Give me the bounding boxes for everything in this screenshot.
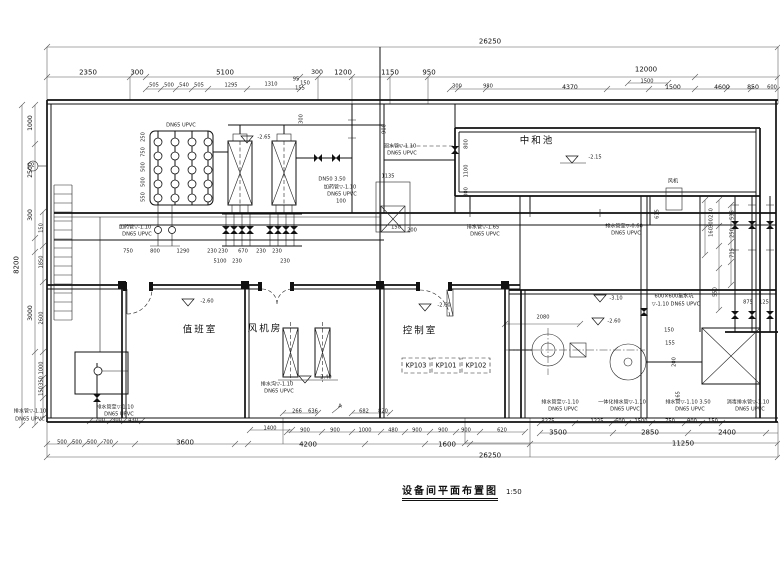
- dimension-label: 155: [295, 86, 305, 91]
- dimension-label: 1150: [381, 70, 399, 77]
- dimension-label: 950: [422, 70, 435, 77]
- annotation-layer: 2625023503005100300120011509501200050550…: [0, 0, 780, 586]
- dimension-label: 1000: [359, 428, 372, 433]
- dimension-label: 900: [461, 428, 471, 433]
- dimension-label: 875: [743, 300, 753, 305]
- dimension-label: 1500: [635, 419, 648, 424]
- dimension-label: 200: [407, 228, 417, 233]
- dimension-label: 700: [103, 440, 113, 445]
- dimension-label: 350: [39, 376, 44, 386]
- level-label: -2.65: [257, 135, 270, 140]
- panel-tag: KP103: [406, 363, 427, 370]
- room-label: 控制室: [403, 326, 438, 336]
- dimension-label: 300: [311, 70, 323, 76]
- dimension-label: 1600: [438, 442, 456, 449]
- pipe-label: 600×600集水坑: [655, 294, 694, 299]
- dimension-label: 150: [664, 328, 674, 333]
- level-label: -3.10: [609, 296, 622, 301]
- dimension-label: 230: [218, 249, 228, 254]
- dimension-label: 150: [391, 225, 401, 230]
- dimension-label: 2350: [79, 70, 97, 77]
- equipment-label: 风机: [668, 179, 678, 184]
- pipe-label: 排水管至▽-1.10: [541, 400, 578, 405]
- dimension-label: 4600: [714, 85, 730, 91]
- pipe-label: DN65 UPVC: [327, 192, 357, 197]
- dimension-label: 550: [713, 287, 718, 297]
- dimension-label: 1295: [225, 83, 238, 88]
- dimension-label: 230: [232, 259, 242, 264]
- dimension-label: 900: [300, 428, 310, 433]
- dimension-label: 230: [207, 249, 217, 254]
- dimension-label: 1850: [39, 256, 44, 269]
- dimension-label: 550: [141, 192, 146, 202]
- pipe-label: DN65 UPVC: [15, 417, 45, 422]
- dimension-label: 600: [767, 85, 777, 90]
- dimension-label: 5100: [214, 259, 227, 264]
- dimension-label: 1135: [382, 174, 395, 179]
- pipe-label: 回水管▽-1.10: [384, 144, 416, 149]
- pipe-label: 排水管▽-1.10: [14, 409, 46, 414]
- pipe-label: 一体化排水管▽-1.10: [598, 400, 646, 405]
- dimension-label: 150: [39, 386, 44, 396]
- level-label: -2.60: [200, 299, 213, 304]
- pipe-label: 消毒排水管▽-1.10: [727, 400, 770, 405]
- pipe-label: ▽-1.10 DN65 UPVC: [652, 302, 700, 307]
- dimension-label: 540: [179, 83, 189, 88]
- level-label: -2.60: [437, 303, 450, 308]
- dimension-label: 800: [464, 139, 469, 149]
- dimension-label: 5100: [216, 70, 234, 77]
- pipe-label: DN65 UPVC: [675, 407, 705, 412]
- dimension-label: 715: [730, 248, 735, 258]
- dimension-label: 800: [150, 249, 160, 254]
- pipe-label: DN65 UPVC: [166, 123, 196, 128]
- dimension-label: 636: [308, 409, 318, 414]
- dimension-label: 200: [672, 357, 677, 367]
- pipe-label: DN65 UPVC: [470, 232, 500, 237]
- dimension-label: 300: [464, 187, 469, 197]
- dimension-label: 500: [87, 440, 97, 445]
- dimension-label: 505: [194, 83, 204, 88]
- dimension-label: 2400: [718, 430, 736, 437]
- dimension-label: 1225: [591, 419, 604, 424]
- dimension-label: 850: [747, 85, 759, 91]
- dimension-label: 12000: [635, 67, 657, 74]
- dimension-label: 125: [759, 300, 769, 305]
- dimension-label: 26250: [479, 453, 501, 460]
- dimension-label: 500: [164, 83, 174, 88]
- dimension-label: 230: [280, 259, 290, 264]
- level-label: -2.40: [318, 375, 331, 380]
- dimension-label: 1100: [464, 165, 469, 178]
- dimension-label: 300: [28, 209, 34, 221]
- dimension-label: 230: [272, 249, 282, 254]
- dimension-label: 620: [497, 428, 507, 433]
- dimension-label: 4200: [299, 442, 317, 449]
- dimension-label: 1500: [665, 85, 681, 91]
- dimension-label: 3600: [176, 440, 194, 447]
- dimension-label: 3000: [28, 305, 34, 321]
- dimension-label: 500: [141, 177, 146, 187]
- dimension-label: 2850: [641, 430, 659, 437]
- dimension-label: 1000: [28, 115, 34, 131]
- pipe-label: 加药管▽-1.10: [324, 185, 356, 190]
- dimension-label: 4370: [562, 85, 578, 91]
- dimension-label: 980: [483, 84, 493, 89]
- dimension-label: 230: [709, 208, 714, 218]
- dimension-label: 682: [359, 409, 369, 414]
- dimension-label: 1400: [264, 426, 277, 431]
- pipe-label: 排水管▽-1.65: [467, 225, 499, 230]
- dimension-label: 150: [39, 223, 44, 233]
- dimension-label: 900: [330, 428, 340, 433]
- dimension-label: 300: [130, 70, 143, 77]
- dimension-label: 250: [141, 132, 146, 142]
- dimension-label: 8200: [14, 256, 21, 274]
- dimension-label: 1200: [334, 70, 352, 77]
- dimension-label: 1500: [641, 79, 654, 84]
- room-label: 中和池: [520, 136, 555, 146]
- dimension-label: 500: [72, 440, 82, 445]
- dimension-label: 480: [388, 428, 398, 433]
- dimension-label: 150: [708, 419, 718, 424]
- dimension-label: 155: [665, 341, 675, 346]
- pipe-label: 排水管至▽-1.10: [96, 405, 133, 410]
- pipe-label: DN65 UPVC: [122, 232, 152, 237]
- dimension-label: 500: [141, 162, 146, 172]
- dimension-label: 600: [615, 419, 625, 424]
- dimension-label: 95: [293, 77, 299, 82]
- dimension-label: 900: [382, 124, 387, 134]
- dimension-label: 430: [128, 418, 138, 423]
- dimension-label: 250: [730, 228, 735, 238]
- dimension-label: 11250: [672, 441, 694, 448]
- drawing-title: 设备间平面布置图: [402, 486, 498, 501]
- dimension-label: 2600: [39, 312, 44, 325]
- dimension-label: 1000: [39, 362, 44, 375]
- room-label: 风机房: [248, 324, 283, 334]
- pipe-label: 排水管▽-1.10 3.50: [665, 400, 710, 405]
- panel-tag: KP102: [466, 363, 487, 370]
- dimension-label: 750: [123, 249, 133, 254]
- dimension-label: 820: [378, 409, 388, 414]
- dimension-label: 300: [299, 114, 304, 124]
- section-marker-label: 2: [31, 163, 34, 168]
- dimension-label: 615: [655, 209, 660, 219]
- pipe-label: DN65 UPVC: [548, 407, 578, 412]
- panel-tag: KP101: [436, 363, 457, 370]
- pipe-label: DN65 UPVC: [611, 231, 641, 236]
- dimension-label: 900: [412, 428, 422, 433]
- dimension-label: 900: [687, 419, 697, 424]
- dimension-label: 3500: [549, 430, 567, 437]
- level-label: -2.15: [588, 155, 601, 160]
- dimension-label: 26250: [479, 39, 501, 46]
- pipe-label: 排水沟▽-1.10: [261, 382, 293, 387]
- dimension-label: 100: [336, 199, 346, 204]
- drawing-scale: 1:50: [506, 488, 522, 496]
- section-marker-label: A: [338, 404, 342, 409]
- dimension-label: 505: [149, 83, 159, 88]
- pipe-label: DN65 UPVC: [264, 389, 294, 394]
- dimension-label: 700: [95, 418, 105, 423]
- dimension-label: 750: [665, 419, 675, 424]
- dimension-label: 500: [57, 440, 67, 445]
- pipe-label: DN65 UPVC: [610, 407, 640, 412]
- dimension-label: 670: [238, 249, 248, 254]
- dimension-label: 1310: [265, 82, 278, 87]
- pipe-label: DN50 3.50: [318, 177, 345, 182]
- dimension-label: 1290: [177, 249, 190, 254]
- pipe-label: 排水管至▽-0.60: [605, 224, 642, 229]
- dimension-label: 300: [112, 418, 122, 423]
- pipe-label: DN65 UPVC: [735, 407, 765, 412]
- dimension-label: 535: [730, 210, 735, 220]
- dimension-label: 900: [438, 428, 448, 433]
- dimension-label: 230: [256, 249, 266, 254]
- dimension-label: 2080: [537, 315, 550, 320]
- room-label: 值班室: [183, 325, 218, 335]
- dimension-label: 160: [709, 227, 714, 237]
- pipe-label: 加药管▽-1.10: [119, 225, 151, 230]
- dimension-label: 750: [141, 147, 146, 157]
- level-label: -2.60: [607, 319, 620, 324]
- drawing-canvas: 2625023503005100300120011509501200050550…: [0, 0, 780, 586]
- drawing-title-block: 设备间平面布置图1:50: [402, 479, 522, 498]
- pipe-label: DN65 UPVC: [387, 151, 417, 156]
- dimension-label: 300: [452, 84, 462, 89]
- dimension-label: 2275: [542, 419, 555, 424]
- dimension-label: 266: [292, 409, 302, 414]
